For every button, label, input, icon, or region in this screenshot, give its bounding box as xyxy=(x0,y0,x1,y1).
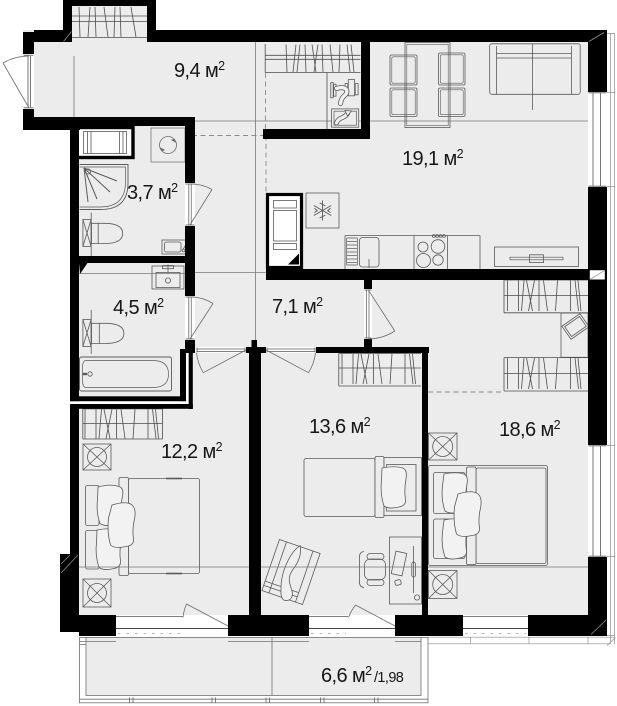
svg-text:18,6 м2: 18,6 м2 xyxy=(499,418,561,441)
svg-text:6,6 м2: 6,6 м2 xyxy=(321,664,372,687)
svg-text:/1,98: /1,98 xyxy=(374,670,404,686)
svg-text:3,7 м2: 3,7 м2 xyxy=(127,181,178,204)
svg-text:12,2 м2: 12,2 м2 xyxy=(161,440,223,463)
svg-text:9,4 м2: 9,4 м2 xyxy=(174,59,225,82)
svg-text:13,6 м2: 13,6 м2 xyxy=(309,415,371,438)
svg-text:7,1 м2: 7,1 м2 xyxy=(272,295,323,318)
svg-text:4,5 м2: 4,5 м2 xyxy=(113,296,164,319)
svg-text:19,1 м2: 19,1 м2 xyxy=(402,147,464,170)
